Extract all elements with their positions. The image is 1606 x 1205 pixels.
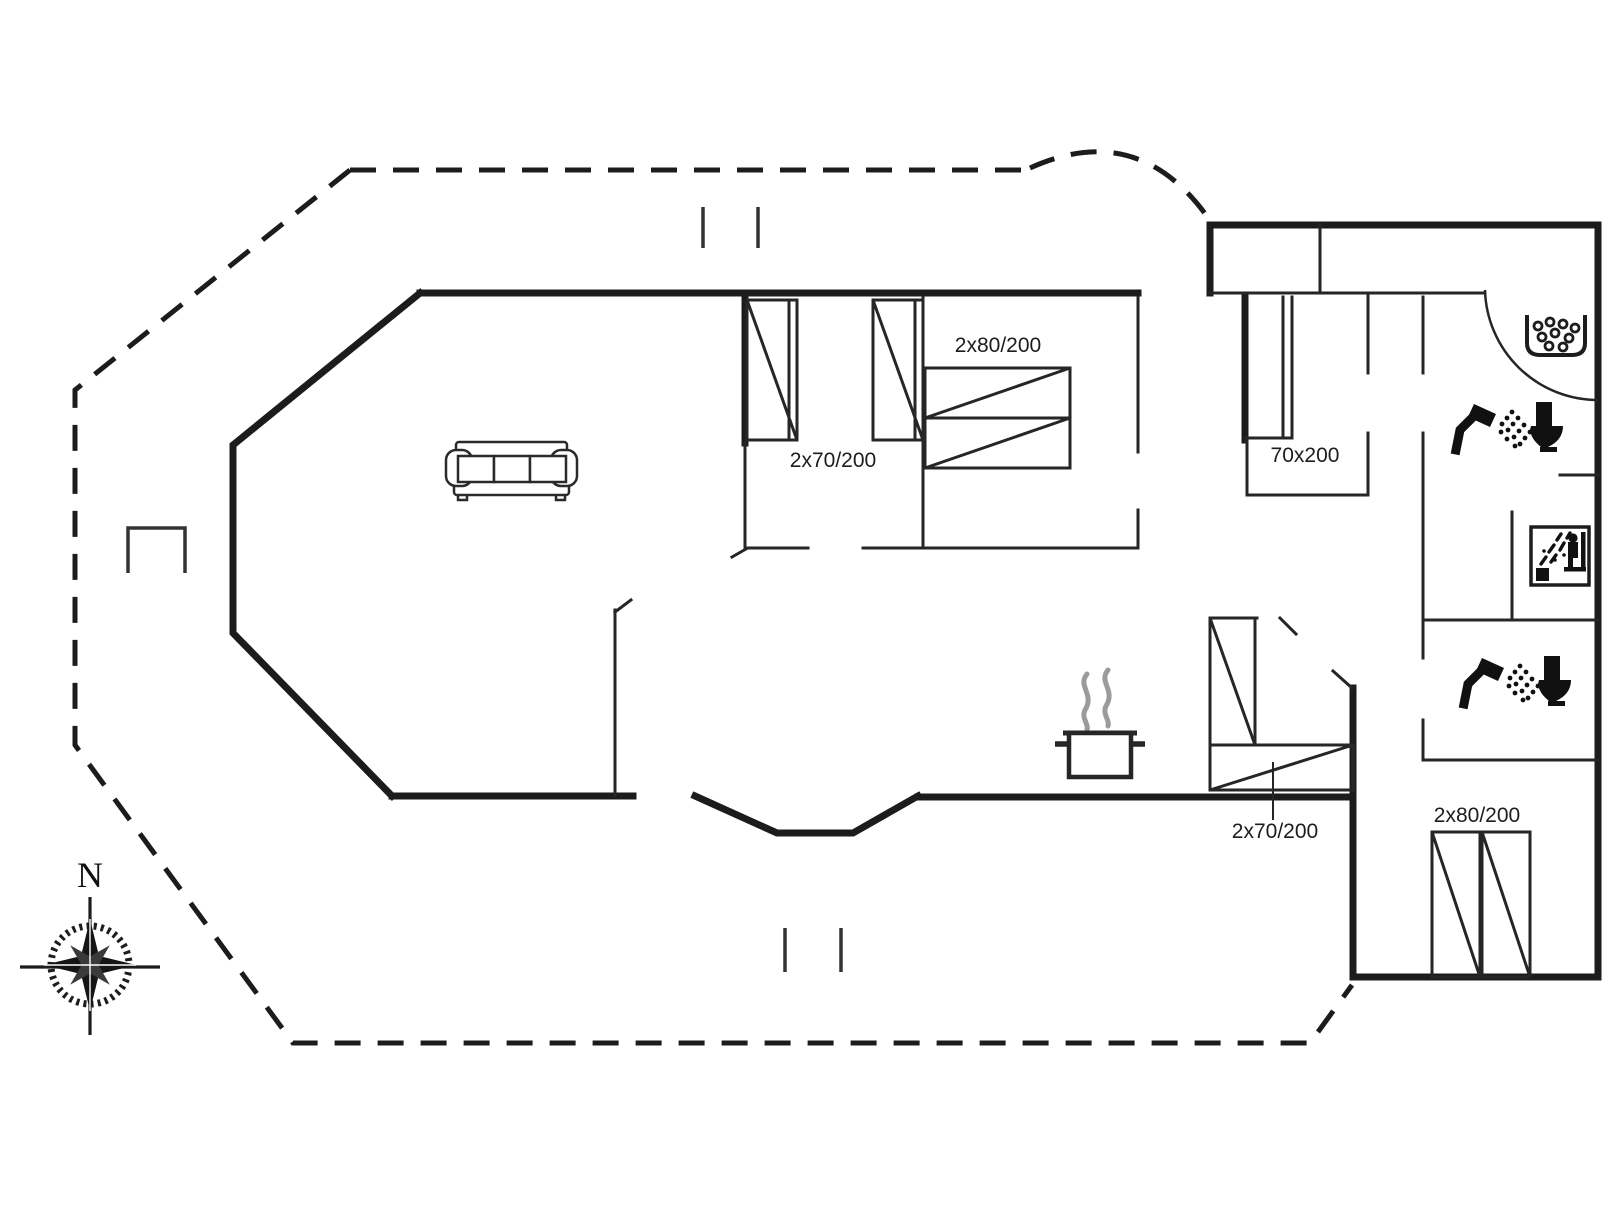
bed-symbol bbox=[925, 418, 1070, 468]
compass-north-label: N bbox=[77, 855, 103, 895]
cooking-pot-icon bbox=[1055, 670, 1145, 777]
bed-dimension-label: 70x200 bbox=[1271, 444, 1340, 467]
shower-toilet-icon bbox=[1456, 402, 1563, 452]
sauna-icon bbox=[1531, 527, 1589, 585]
bed-dimension-label: 2x70/200 bbox=[790, 449, 876, 472]
steps-symbol bbox=[128, 528, 185, 573]
bed-symbol bbox=[1210, 745, 1353, 790]
bed-symbol bbox=[925, 368, 1070, 418]
bay-window-wall bbox=[695, 796, 918, 833]
terrace-outline bbox=[75, 152, 1352, 1043]
door-swing-arc bbox=[1485, 290, 1598, 400]
bed-symbol bbox=[1482, 832, 1530, 977]
sofa-icon bbox=[446, 442, 577, 500]
bed-dimension-label: 2x80/200 bbox=[955, 334, 1041, 357]
compass-rose-icon: N bbox=[20, 855, 160, 1035]
bed-symbol bbox=[747, 300, 797, 440]
whirlpool-tub-icon bbox=[1527, 315, 1585, 355]
bed-dimension-label: 2x80/200 bbox=[1434, 804, 1520, 827]
bed-symbol bbox=[1432, 832, 1480, 977]
steam-icon bbox=[1084, 674, 1088, 730]
bed-dimension-label: 2x70/200 bbox=[1232, 820, 1318, 843]
shower-toilet-icon bbox=[1464, 656, 1571, 706]
steam-icon bbox=[1105, 670, 1109, 726]
floor-plan: N 2x70/200 2x80/200 70x200 2x70/200 2x80… bbox=[0, 0, 1606, 1205]
bed-symbol bbox=[873, 300, 923, 440]
terrace-arc-path bbox=[1030, 152, 1211, 222]
bed-symbol bbox=[1210, 618, 1255, 745]
